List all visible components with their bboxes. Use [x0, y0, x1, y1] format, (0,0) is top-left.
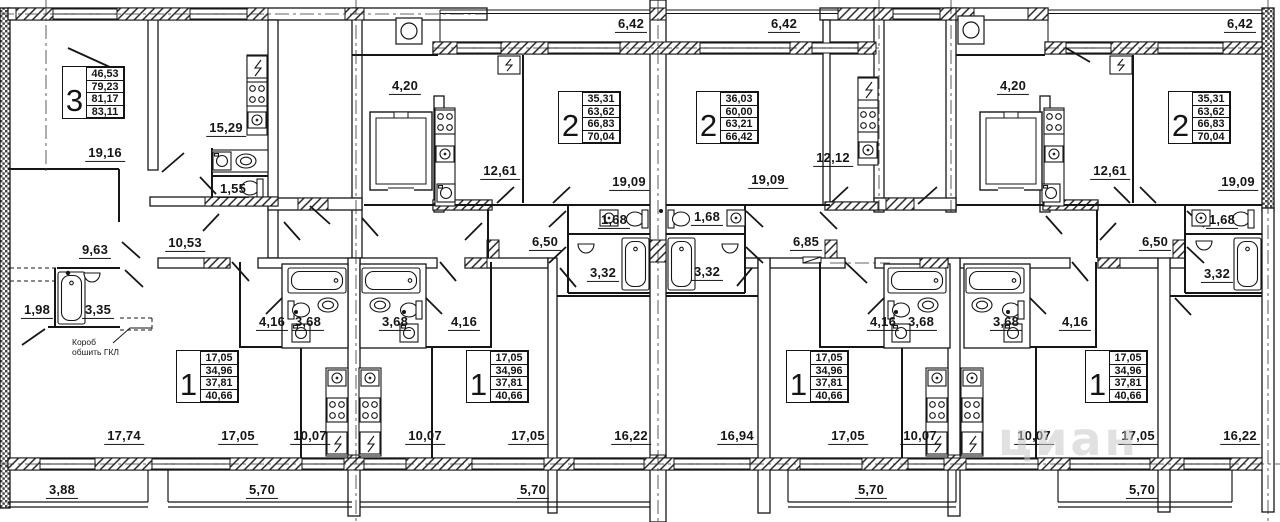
sink-icon — [236, 154, 256, 168]
note-line: обшить ГКЛ — [72, 347, 119, 357]
dimension-label: 12,61 — [1090, 164, 1130, 180]
dimension-label: 4,16 — [256, 315, 288, 331]
dimension-label: 4,20 — [389, 79, 421, 95]
dimension-label: 17,05 — [218, 429, 258, 445]
apartment-number: 2 — [697, 92, 720, 143]
dimension-label: 12,61 — [480, 164, 520, 180]
washer-icon — [1042, 184, 1060, 202]
construction-note: Короб обшить ГКЛ — [72, 337, 119, 357]
sink-icon — [963, 370, 981, 386]
dimension-label: 5,70 — [246, 483, 278, 499]
stove-icon — [327, 398, 347, 422]
apartment-number: 2 — [1169, 92, 1192, 143]
bathtub-icon — [1234, 238, 1261, 290]
apartment-area-value: 40,66 — [1109, 389, 1147, 403]
dimension-label: 3,88 — [46, 483, 78, 499]
apartment-areas: 46,5379,2381,1783,11 — [86, 67, 124, 118]
sink-icon — [928, 370, 946, 386]
stove-icon — [962, 398, 982, 422]
sink-icon — [328, 370, 346, 386]
elevator-icon — [980, 112, 1042, 191]
dimension-label: 3,68 — [379, 315, 411, 331]
dimension-label: 19,09 — [748, 173, 788, 189]
dimension-label: 4,16 — [448, 315, 480, 331]
apartment-info-table: 117,0534,9637,8140,66 — [176, 350, 239, 403]
apartment-areas: 17,0534,9637,8140,66 — [490, 351, 528, 402]
sink-icon — [859, 142, 877, 158]
sink-icon — [972, 298, 992, 312]
sink-icon — [318, 298, 338, 312]
dimension-label: 6,85 — [790, 235, 822, 251]
stove-icon — [1044, 110, 1064, 134]
apartment-info-table: 236,0360,0063,2166,42 — [696, 91, 759, 144]
dimension-label: 3,68 — [292, 315, 324, 331]
apartment-area-value: 66,42 — [720, 130, 758, 144]
dimension-label: 6,42 — [615, 17, 647, 33]
dimension-label: 3,32 — [587, 266, 619, 282]
dimension-label: 17,05 — [828, 429, 868, 445]
apartment-info-table: 235,3163,6266,8370,04 — [558, 91, 621, 144]
elevator-icon — [370, 112, 432, 191]
washer-icon — [437, 184, 455, 202]
dimension-label: 17,05 — [508, 429, 548, 445]
dimension-label: 10,07 — [290, 429, 330, 445]
dimension-label: 16,22 — [1220, 429, 1260, 445]
dimension-label: 6,50 — [1139, 235, 1171, 251]
apartment-info-table: 117,0534,9637,8140,66 — [466, 350, 529, 403]
bathtub-icon — [888, 268, 946, 293]
washer-icon — [213, 152, 231, 170]
dimension-label: 3,68 — [990, 315, 1022, 331]
apartment-areas: 35,3163,6266,8370,04 — [1192, 92, 1230, 143]
bathtub-icon — [58, 272, 85, 324]
dimension-label: 1,68 — [691, 210, 723, 226]
floor-plan: 346,5379,2381,1783,11235,3163,6266,8370,… — [0, 0, 1280, 522]
sink-icon — [370, 298, 390, 312]
dimension-label: 1,98 — [21, 303, 53, 319]
apartment-number: 2 — [559, 92, 582, 143]
dimension-label: 9,63 — [79, 243, 111, 259]
dimension-label: 3,32 — [691, 265, 723, 281]
dimension-label: 17,74 — [104, 429, 144, 445]
dimension-label: 4,16 — [867, 315, 899, 331]
dimension-label: 5,70 — [517, 483, 549, 499]
stove-icon — [360, 398, 380, 422]
dimension-label: 15,29 — [206, 121, 246, 137]
apartment-area-value: 40,66 — [810, 389, 848, 403]
dimension-label: 6,50 — [529, 235, 561, 251]
dimension-label: 1,55 — [217, 182, 249, 198]
sink-icon — [436, 146, 454, 162]
dimension-label: 3,68 — [905, 315, 937, 331]
apartment-areas: 17,0534,9637,8140,66 — [200, 351, 238, 402]
apartment-info-table: 235,3163,6266,8370,04 — [1168, 91, 1231, 144]
apartment-number: 3 — [63, 67, 86, 118]
dimension-label: 3,35 — [82, 303, 114, 319]
sink-icon — [727, 210, 745, 226]
apartment-areas: 17,0534,9637,8140,66 — [810, 351, 848, 402]
dimension-label: 19,16 — [85, 146, 125, 162]
apartment-number: 1 — [467, 351, 490, 402]
sink-icon — [361, 370, 379, 386]
apartment-number: 1 — [1086, 351, 1109, 402]
dimension-label: 10,07 — [900, 429, 940, 445]
dimension-label: 16,94 — [717, 429, 757, 445]
bathtub-icon — [288, 268, 346, 293]
apartment-info-table: 117,0534,9637,8140,66 — [1085, 350, 1148, 403]
dimension-label: 1,68 — [1206, 213, 1238, 229]
dimension-label: 4,16 — [1059, 315, 1091, 331]
bathtub-icon — [362, 268, 420, 293]
note-line: Короб — [72, 337, 119, 347]
vent-icon — [360, 432, 380, 454]
dimension-label: 3,32 — [1201, 267, 1233, 283]
vent-icon — [858, 78, 878, 100]
sink-icon — [722, 244, 738, 253]
dimension-label: 4,20 — [997, 79, 1029, 95]
vent-icon — [962, 432, 982, 454]
bathtub-icon — [622, 238, 649, 290]
dimension-label: 10,07 — [405, 429, 445, 445]
stove-icon — [858, 108, 878, 132]
bathtub-icon — [966, 268, 1024, 293]
dimension-label: 12,12 — [813, 151, 853, 167]
apartment-areas: 17,0534,9637,8140,66 — [1109, 351, 1147, 402]
apartment-area-value: 83,11 — [86, 105, 124, 119]
apartment-area-value: 70,04 — [582, 130, 620, 144]
balcony-rails — [8, 470, 1232, 507]
sink-icon — [1045, 146, 1063, 162]
apartment-area-value: 40,66 — [200, 389, 238, 403]
dimension-label: 19,09 — [1218, 175, 1258, 191]
dimension-label: 5,70 — [855, 483, 887, 499]
apartment-number: 1 — [787, 351, 810, 402]
sink-icon — [84, 273, 100, 282]
dimension-label: 5,70 — [1126, 483, 1158, 499]
dimension-label: 6,42 — [1224, 17, 1256, 33]
dimension-label: 6,42 — [768, 17, 800, 33]
electric-panel-icon — [1110, 56, 1132, 74]
stove-icon — [927, 398, 947, 422]
stove-icon — [435, 110, 455, 134]
dimension-label: 16,22 — [611, 429, 651, 445]
stove-icon — [247, 82, 267, 106]
vent-icon — [327, 432, 347, 454]
apartment-info-table: 117,0534,9637,8140,66 — [786, 350, 849, 403]
apartment-area-value: 70,04 — [1192, 130, 1230, 144]
apartment-info-table: 346,5379,2381,1783,11 — [62, 66, 125, 119]
sink-icon — [918, 298, 938, 312]
apartment-areas: 35,3163,6266,8370,04 — [582, 92, 620, 143]
dimension-label: 19,09 — [609, 175, 649, 191]
apartment-number: 1 — [177, 351, 200, 402]
apartment-areas: 36,0360,0063,2166,42 — [720, 92, 758, 143]
electric-panel-icon — [498, 56, 520, 74]
dimension-label: 10,53 — [165, 236, 205, 252]
dimension-label: 1,68 — [598, 213, 630, 229]
sink-icon — [578, 244, 594, 253]
toilet-icon — [668, 210, 690, 228]
vent-icon — [247, 56, 267, 78]
sink-icon — [1196, 241, 1212, 250]
apartment-area-value: 40,66 — [490, 389, 528, 403]
sink-icon — [248, 112, 266, 128]
watermark: циан — [998, 412, 1139, 466]
